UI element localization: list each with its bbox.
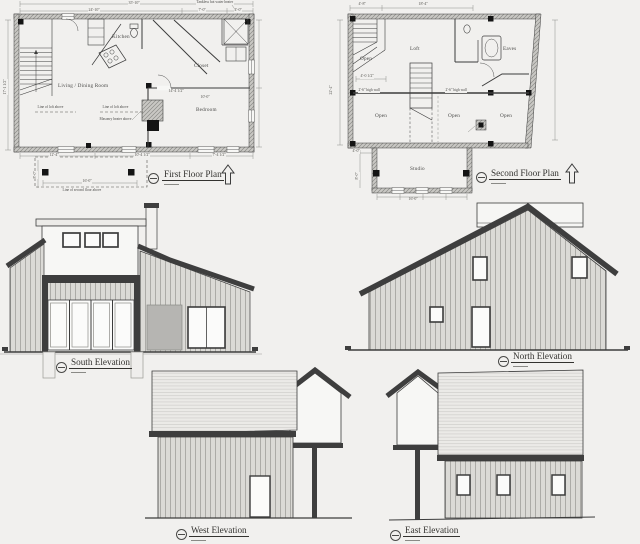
dim-sf-top-left: 4'-8" (358, 3, 366, 7)
west-elevation-scale-note (191, 540, 206, 541)
annotation-second-floor-above: Line of second floor above (62, 189, 102, 193)
first-floor-scale-note (164, 184, 179, 185)
dim-sf-top-mid: 18'-4" (418, 3, 428, 7)
dim-ff-bottom-right: 7'-4 1/2" (212, 154, 226, 158)
dim-ff-left-height: 17'-1 1/2" (4, 79, 8, 95)
east-elevation-scale-note (405, 540, 420, 541)
second-floor-stair (353, 19, 385, 72)
west-elevation-drawing (140, 360, 370, 544)
first-floor-dimension-lines (5, 1, 262, 188)
dim-ff-porch-width: 16'-0" (82, 180, 92, 184)
dim-sf-studio-offset: 4'-0" (352, 150, 360, 154)
first-floor-masonry-heater (142, 100, 163, 131)
west-elevation-callout-icon (176, 529, 187, 540)
room-label-studio: Studio (410, 167, 425, 172)
room-label-living-dining: Living / Dining Room (58, 84, 108, 89)
first-floor-bath-and-closet (130, 19, 248, 74)
south-elevation-scale-note (71, 372, 86, 373)
annotation-loft-above-left: Line of loft above (37, 106, 64, 110)
room-label-loft: Loft (410, 47, 420, 52)
room-label-bedroom: Bedroom (196, 108, 217, 113)
dim-ff-bedroom-upper: 14'-4 1/2" (168, 90, 184, 94)
second-floor-callout-icon (476, 172, 487, 183)
first-floor-exterior-walls (14, 14, 254, 152)
room-label-open-sw: Open (375, 114, 387, 119)
dim-ff-bedroom-width: 10'-0" (200, 96, 210, 100)
north-arrow-icon (222, 165, 234, 184)
room-label-open-se: Open (500, 114, 512, 119)
room-label-open-nw: Open (360, 57, 372, 62)
south-elevation-title: South Elevation (69, 358, 132, 369)
north-elevation-drawing (340, 195, 640, 370)
room-label-eaves: Eaves (503, 47, 516, 52)
south-elevation-drawing (0, 195, 290, 385)
dim-ff-top-mid: 7'-0" (198, 9, 206, 13)
annotation-tankless-heater: Tankless hot water heater (196, 1, 234, 5)
south-center-glazed-wall (42, 275, 140, 352)
west-studio-wall (158, 437, 293, 518)
east-studio-wall (445, 461, 582, 518)
dim-ff-top-left: 24'-10" (88, 9, 100, 13)
dim-sf-studio-depth: 8'-0" (356, 172, 360, 180)
first-floor-callout-icon (148, 173, 159, 184)
dim-sf-open-width: 4'-0 1/2" (360, 75, 374, 79)
west-studio-roof (149, 371, 297, 437)
first-floor-kitchen-fixtures (88, 19, 126, 68)
north-arrow-icon-2 (566, 164, 578, 183)
note-high-wall-left: 2'-6" high wall (358, 89, 380, 93)
second-floor-ladder (410, 63, 432, 143)
first-floor-plan-title: First Floor Plan (162, 170, 224, 181)
second-floor-heater-chimney (468, 120, 486, 132)
south-right-wing (138, 246, 254, 352)
south-elevation-callout-icon (56, 362, 67, 373)
dim-ff-bottom-left: 12'-4" (49, 154, 59, 158)
first-floor-plan-drawing (0, 0, 290, 205)
dim-sf-left-height: 22'-4" (330, 85, 334, 95)
dim-ff-top-overall: 35'-10" (128, 2, 140, 6)
south-left-wing (7, 240, 45, 352)
dim-ff-top-right: 4'-0" (234, 9, 242, 13)
dim-ff-porch-depth: 8'-0" (34, 171, 38, 179)
east-studio-roof (437, 370, 584, 461)
east-elevation-title: East Elevation (403, 526, 460, 537)
second-floor-scale-note (491, 183, 506, 184)
west-elevation-title: West Elevation (189, 526, 249, 537)
note-high-wall-right: 2'-6" high wall (445, 89, 467, 93)
room-label-open-s: Open (448, 114, 460, 119)
room-label-closet: Closet (194, 64, 208, 69)
east-elevation-callout-icon (390, 530, 401, 541)
dim-ff-bottom-mid: 10'-4 1/2" (134, 154, 150, 158)
second-floor-bath (455, 19, 501, 77)
room-label-kitchen: Kitchen (112, 35, 130, 40)
annotation-loft-above-right: Line of loft above (102, 106, 129, 110)
annotation-masonry-heater: Masonry heater above (99, 118, 132, 122)
second-floor-plan-title: Second Floor Plan (489, 169, 561, 180)
south-clerestory-tower (36, 219, 146, 278)
east-elevation-drawing (385, 360, 620, 544)
architectural-drawing-sheet: Kitchen Living / Dining Room Closet Bedr… (0, 0, 640, 544)
second-floor-eaves-rail (482, 74, 529, 86)
first-floor-stair (20, 19, 52, 96)
